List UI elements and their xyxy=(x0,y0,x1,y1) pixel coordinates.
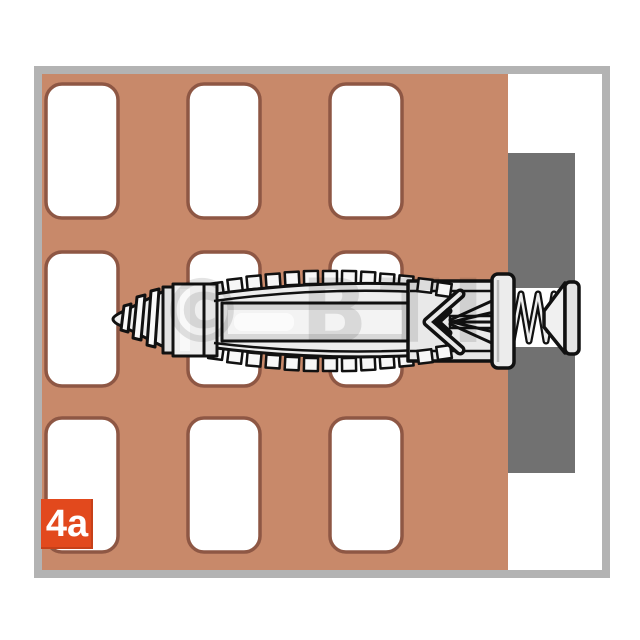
brick-cavity xyxy=(46,84,118,218)
anchor-neck xyxy=(163,284,209,356)
step-label: 4a xyxy=(41,499,93,549)
brick-cavity xyxy=(330,84,402,218)
anchor-collar xyxy=(492,274,514,368)
brick-cavity xyxy=(188,84,260,218)
brick-cavity xyxy=(330,418,402,552)
brick-cavity xyxy=(46,252,118,386)
diagram: © BTI 4a xyxy=(0,0,640,640)
diagram-canvas xyxy=(0,0,640,640)
brick-cavity xyxy=(188,418,260,552)
step-label-text: 4a xyxy=(46,503,88,546)
wall-plug-anchor xyxy=(163,271,514,371)
